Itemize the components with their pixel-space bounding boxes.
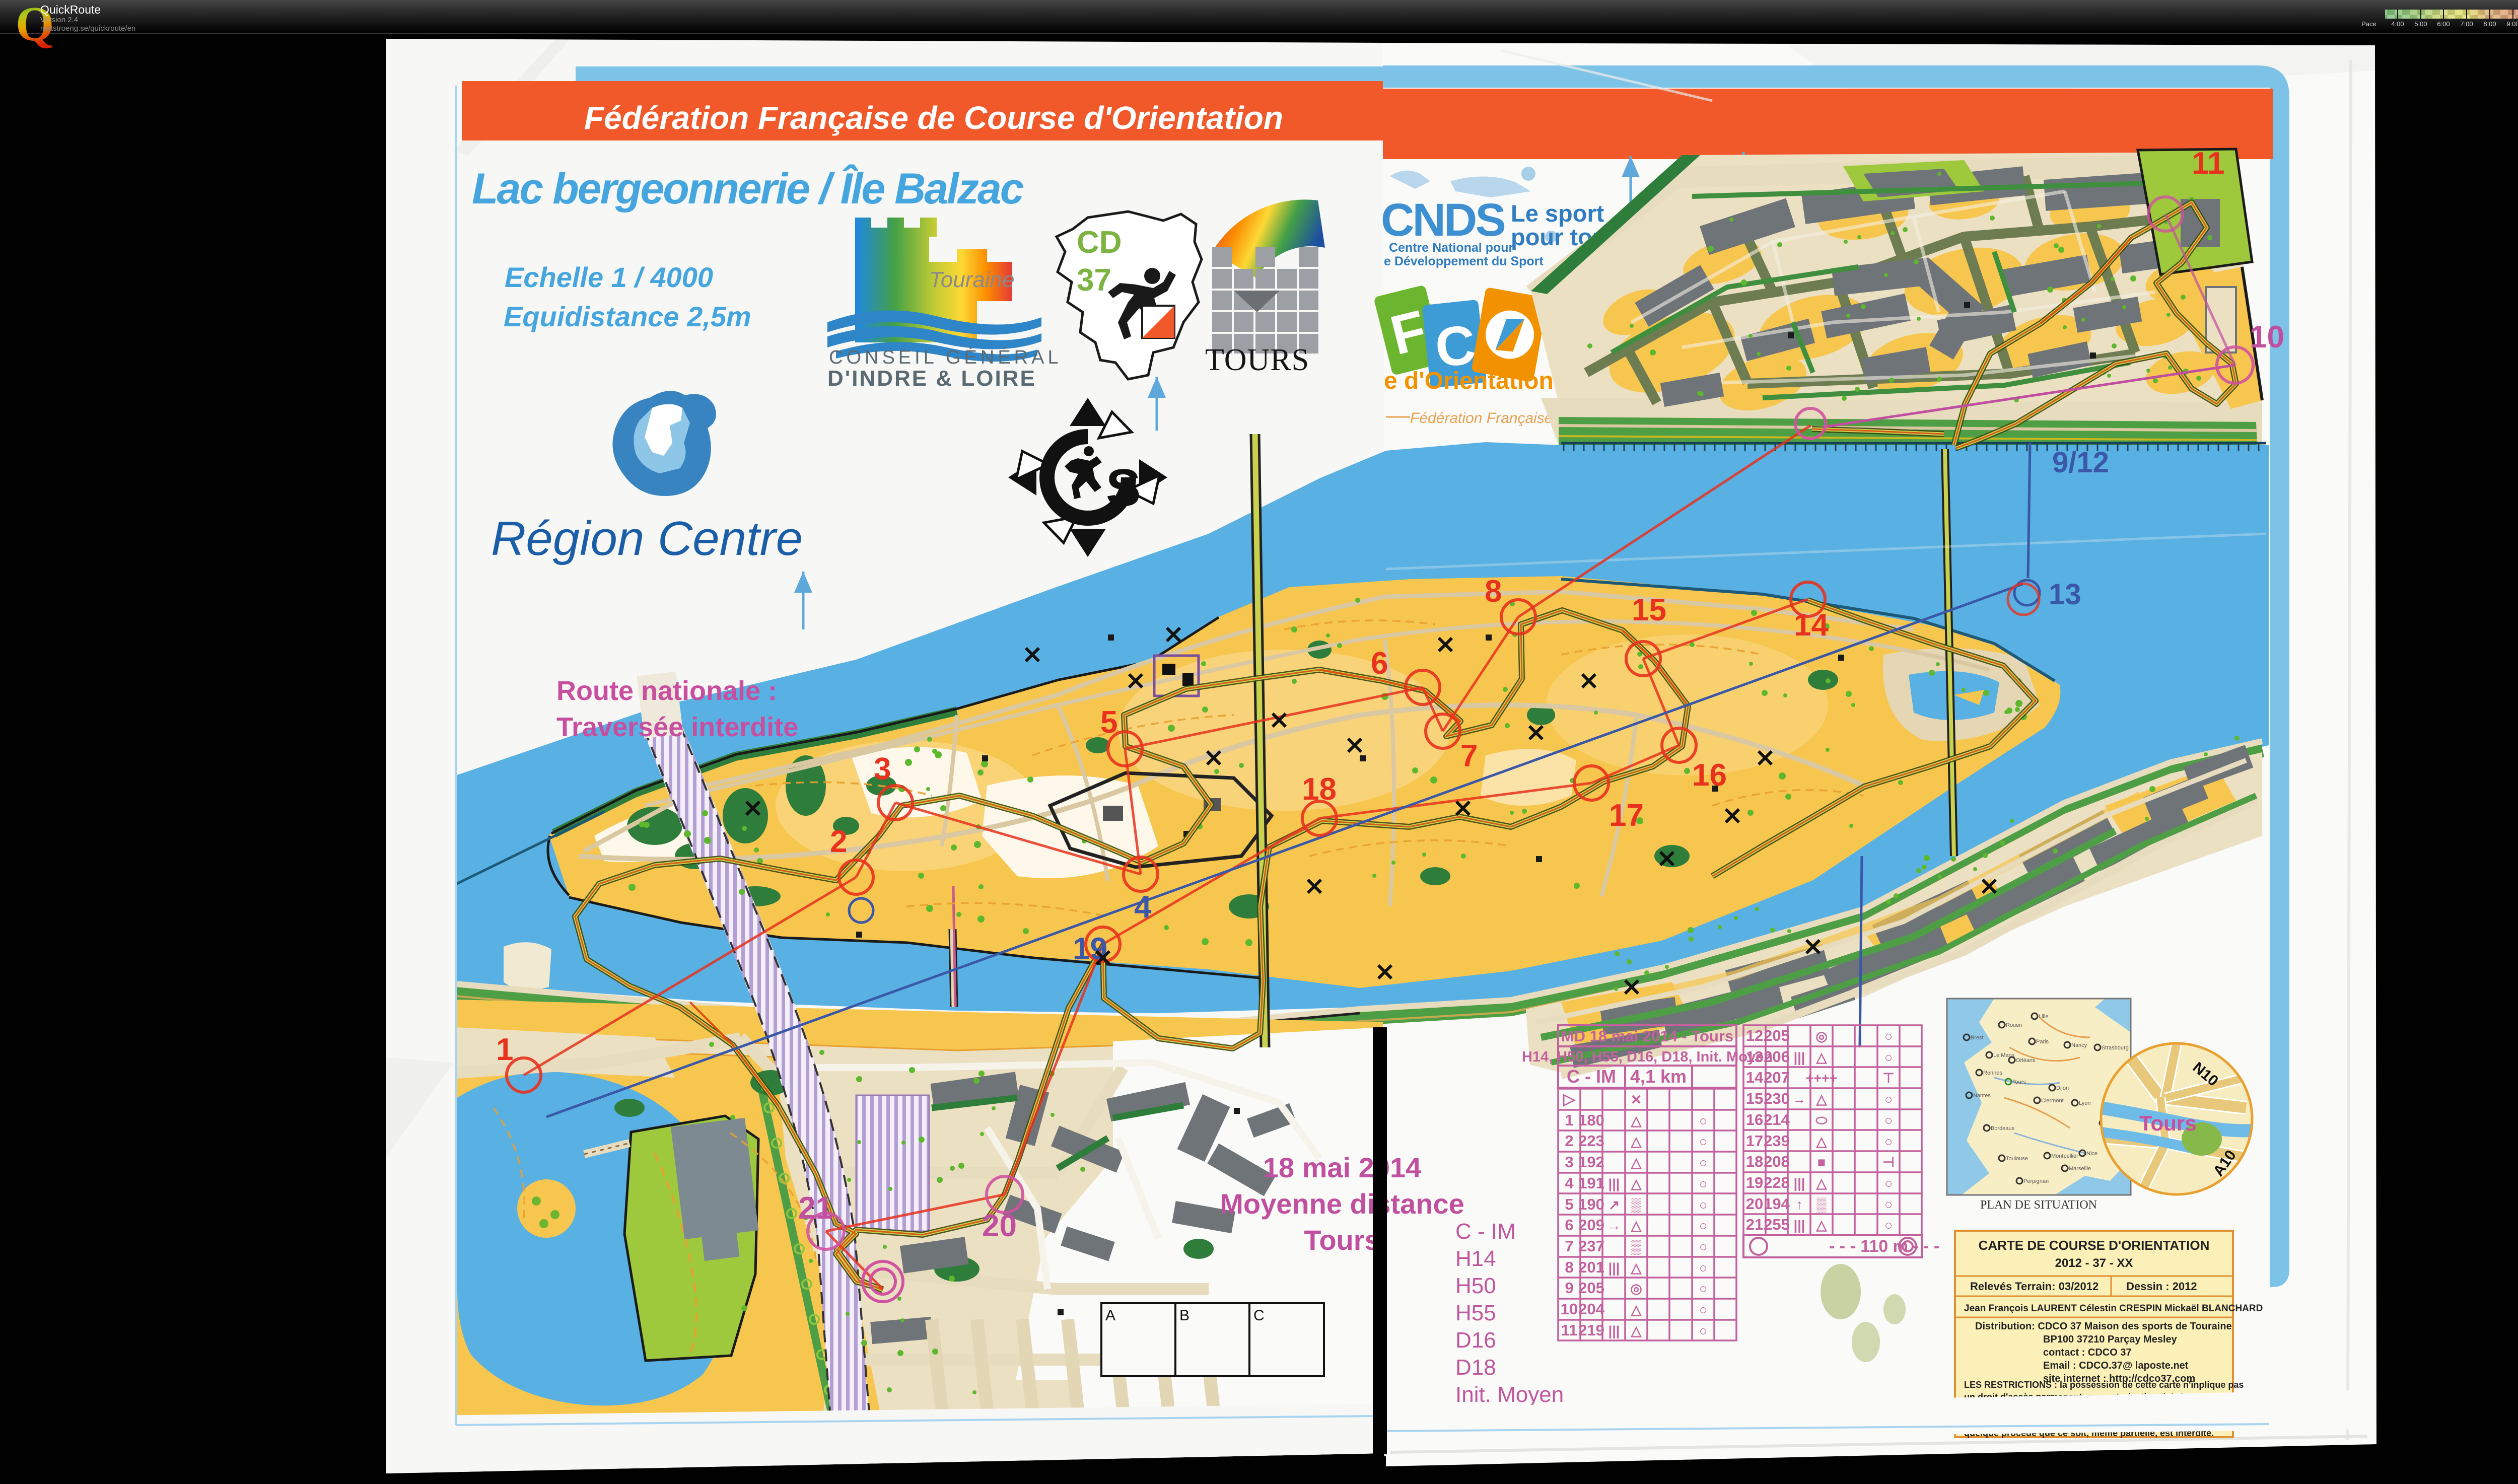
svg-text:Strasbourg: Strasbourg xyxy=(2102,1045,2129,1051)
svg-text:2: 2 xyxy=(830,824,847,859)
svg-text:37: 37 xyxy=(1077,263,1111,298)
svg-text:14: 14 xyxy=(1794,608,1829,643)
svg-text:Bordeaux: Bordeaux xyxy=(1991,1125,2015,1132)
svg-text:○: ○ xyxy=(1884,1113,1893,1128)
svg-text:17: 17 xyxy=(1609,798,1644,833)
svg-text:S: S xyxy=(1106,459,1141,517)
svg-text:Tours: Tours xyxy=(1304,1224,1380,1256)
svg-text:▒: ▒ xyxy=(1816,1197,1827,1213)
svg-text:○: ○ xyxy=(1699,1134,1707,1149)
svg-text:H14: H14 xyxy=(1455,1246,1496,1271)
svg-text:○: ○ xyxy=(1884,1050,1893,1065)
svg-text:223: 223 xyxy=(1578,1132,1604,1150)
svg-text:1: 1 xyxy=(496,1032,513,1067)
svg-text:|||: ||| xyxy=(1608,1260,1620,1276)
svg-text:18: 18 xyxy=(1302,772,1337,807)
svg-text:7: 7 xyxy=(1460,739,1478,773)
svg-text:⊤: ⊤ xyxy=(1882,1071,1895,1086)
svg-text:- - - 110 m - - -: - - - 110 m - - - xyxy=(1829,1237,1939,1256)
svg-text:204: 204 xyxy=(1578,1300,1604,1318)
svg-text:|||: ||| xyxy=(1794,1050,1805,1065)
svg-text:TOURS: TOURS xyxy=(1205,343,1309,377)
svg-text:○: ○ xyxy=(1699,1281,1707,1296)
svg-text:D16: D16 xyxy=(1455,1328,1496,1353)
svg-text:Touraine: Touraine xyxy=(929,267,1015,292)
svg-text:contact : CDCO 37: contact : CDCO 37 xyxy=(2043,1347,2132,1358)
svg-text:4,1 km: 4,1 km xyxy=(1630,1066,1687,1087)
svg-text:Tours: Tours xyxy=(2139,1111,2197,1135)
svg-text:18: 18 xyxy=(1746,1153,1763,1170)
svg-text:214: 214 xyxy=(1764,1111,1790,1128)
svg-text:219: 219 xyxy=(1578,1321,1604,1339)
svg-text:Tours: Tours xyxy=(2012,1079,2026,1085)
svg-text:QuickRoute: QuickRoute xyxy=(40,3,101,16)
svg-text:△: △ xyxy=(1816,1134,1828,1149)
svg-text:Equidistance 2,5m: Equidistance 2,5m xyxy=(504,301,751,332)
svg-text:8: 8 xyxy=(1485,574,1502,609)
svg-text:A: A xyxy=(1105,1307,1115,1324)
svg-text:16: 16 xyxy=(1692,758,1727,793)
svg-text:11: 11 xyxy=(2192,146,2225,181)
svg-text:CARTE DE COURSE D'ORIENTATION: CARTE DE COURSE D'ORIENTATION xyxy=(1979,1238,2210,1253)
svg-text:6:00: 6:00 xyxy=(2437,20,2450,28)
svg-text:Fédération Française de Course: Fédération Française de Course d'Orienta… xyxy=(584,100,1283,136)
svg-text:Traversée interdite: Traversée interdite xyxy=(556,712,798,742)
svg-text:2: 2 xyxy=(1565,1132,1573,1150)
svg-text:4: 4 xyxy=(1565,1174,1574,1192)
svg-text:◎: ◎ xyxy=(1630,1281,1642,1296)
svg-text:○: ○ xyxy=(1699,1260,1707,1276)
svg-text:5: 5 xyxy=(1100,705,1117,740)
svg-text:18 mai 2014: 18 mai 2014 xyxy=(1263,1152,1421,1183)
svg-text:△: △ xyxy=(1816,1050,1828,1065)
svg-text:△: △ xyxy=(1631,1302,1642,1317)
svg-text:▷: ▷ xyxy=(1563,1090,1576,1108)
svg-text:△: △ xyxy=(1631,1155,1642,1170)
svg-text:○: ○ xyxy=(1884,1218,1893,1233)
svg-text:⊣: ⊣ xyxy=(1882,1155,1895,1170)
svg-text:7:00: 7:00 xyxy=(2460,20,2473,28)
svg-text:++++: ++++ xyxy=(1805,1071,1837,1086)
svg-text:Distribution: CDCO 37 Maison: Distribution: CDCO 37 Maison des sports … xyxy=(1975,1321,2232,1332)
svg-text:Brest: Brest xyxy=(1971,1035,1984,1041)
svg-text:237: 237 xyxy=(1578,1237,1604,1255)
svg-text:192: 192 xyxy=(1578,1153,1604,1171)
svg-text:○: ○ xyxy=(1699,1113,1707,1128)
svg-text:7: 7 xyxy=(1565,1237,1573,1255)
svg-text:9:00: 9:00 xyxy=(2506,20,2518,28)
svg-text:Clermont: Clermont xyxy=(2041,1098,2064,1104)
svg-text:208: 208 xyxy=(1764,1153,1790,1170)
svg-text:13: 13 xyxy=(2049,578,2081,611)
svg-text:Jean François LAURENT Célestin: Jean François LAURENT Célestin CRESPIN M… xyxy=(1964,1303,2263,1314)
svg-text:9: 9 xyxy=(1565,1279,1573,1297)
svg-text:194: 194 xyxy=(1764,1195,1790,1213)
svg-text:D'INDRE & LOIRE: D'INDRE & LOIRE xyxy=(827,366,1036,391)
svg-text:○: ○ xyxy=(1699,1176,1707,1191)
svg-text:C: C xyxy=(1253,1307,1265,1324)
svg-text:BP100 37210 Parçay Mesley: BP100 37210 Parçay Mesley xyxy=(2043,1334,2178,1345)
svg-text:Nancy: Nancy xyxy=(2071,1042,2087,1048)
svg-text:Lille: Lille xyxy=(2039,1014,2049,1020)
svg-text:10: 10 xyxy=(1561,1300,1578,1318)
svg-text:|||: ||| xyxy=(1608,1176,1620,1191)
svg-text:14: 14 xyxy=(1746,1069,1764,1086)
svg-text:Centre National pour: Centre National pour xyxy=(1389,241,1514,255)
svg-text:CONSEIL GÉNÉRAL: CONSEIL GÉNÉRAL xyxy=(829,346,1062,368)
svg-text:↗: ↗ xyxy=(1608,1197,1620,1213)
svg-text:3: 3 xyxy=(874,752,891,787)
svg-text:○: ○ xyxy=(1884,1092,1893,1107)
svg-text:21: 21 xyxy=(1746,1216,1763,1233)
svg-text:△: △ xyxy=(1631,1113,1642,1128)
svg-text:|||: ||| xyxy=(1794,1176,1805,1191)
svg-text:11: 11 xyxy=(1561,1321,1578,1339)
svg-text:15: 15 xyxy=(1632,593,1666,627)
svg-text:|||: ||| xyxy=(1794,1218,1805,1233)
svg-text:△: △ xyxy=(1631,1323,1642,1338)
svg-text:LES RESTRICTIONS : la possessi: LES RESTRICTIONS : la possession de cett… xyxy=(1964,1380,2244,1390)
svg-text:Dessin : 2012: Dessin : 2012 xyxy=(2126,1280,2197,1293)
svg-text:⬭: ⬭ xyxy=(1815,1113,1828,1128)
svg-text:15: 15 xyxy=(1746,1090,1763,1107)
svg-text:2012 - 37 - XX: 2012 - 37 - XX xyxy=(2055,1256,2133,1270)
svg-text:Rouen: Rouen xyxy=(2006,1022,2022,1028)
svg-text:H14, H50, H55, D16, D18, Init.: H14, H50, H55, D16, D18, Init. Moyen xyxy=(1522,1049,1773,1065)
svg-text:CD: CD xyxy=(1077,225,1122,260)
svg-text:Version 2.4: Version 2.4 xyxy=(40,16,78,24)
svg-text:Le sport: Le sport xyxy=(1511,200,1604,227)
svg-text:△: △ xyxy=(1816,1218,1828,1233)
svg-text:✕: ✕ xyxy=(1631,1092,1642,1107)
svg-text:9/12: 9/12 xyxy=(2052,446,2109,479)
svg-text:▒: ▒ xyxy=(1631,1239,1641,1255)
svg-text:B: B xyxy=(1179,1307,1190,1324)
svg-text:Relevés Terrain: 03/2012: Relevés Terrain: 03/2012 xyxy=(1970,1280,2099,1293)
svg-text:○: ○ xyxy=(1699,1239,1707,1254)
svg-text:|||: ||| xyxy=(1608,1323,1620,1338)
svg-text:△: △ xyxy=(1631,1260,1642,1276)
svg-text:○: ○ xyxy=(1884,1197,1893,1212)
svg-text:e Développement du Sport: e Développement du Sport xyxy=(1384,254,1544,268)
svg-text:21: 21 xyxy=(798,1191,833,1226)
svg-text:○: ○ xyxy=(1699,1302,1707,1317)
svg-text:CNDS: CNDS xyxy=(1381,194,1504,246)
svg-text:20: 20 xyxy=(982,1209,1017,1243)
svg-text:190: 190 xyxy=(1578,1195,1604,1213)
svg-text:12: 12 xyxy=(1746,1027,1763,1044)
svg-text:8: 8 xyxy=(1565,1258,1573,1276)
svg-text:255: 255 xyxy=(1764,1216,1790,1233)
svg-text:Dijon: Dijon xyxy=(2056,1085,2069,1091)
svg-text:191: 191 xyxy=(1578,1174,1604,1192)
svg-text:Lac bergeonnerie / Île Balzac: Lac bergeonnerie / Île Balzac xyxy=(472,165,1024,213)
svg-text:△: △ xyxy=(1631,1176,1642,1191)
svg-text:△: △ xyxy=(1816,1092,1828,1107)
svg-text:◎: ◎ xyxy=(1815,1029,1828,1044)
svg-text:○: ○ xyxy=(1884,1029,1893,1044)
svg-text:6: 6 xyxy=(1371,646,1388,681)
svg-text:Rennes: Rennes xyxy=(1983,1070,2002,1076)
svg-text:Pace: Pace xyxy=(2361,20,2376,28)
svg-text:228: 228 xyxy=(1764,1174,1790,1191)
svg-text:19: 19 xyxy=(1746,1174,1763,1191)
svg-text:MD 18 mai 2014 - Tours: MD 18 mai 2014 - Tours xyxy=(1561,1027,1733,1045)
svg-text:13: 13 xyxy=(1746,1048,1763,1066)
svg-text:8:00: 8:00 xyxy=(2483,20,2496,28)
svg-text:1: 1 xyxy=(1565,1111,1573,1129)
svg-text:△: △ xyxy=(1631,1134,1642,1149)
svg-text:230: 230 xyxy=(1764,1090,1790,1107)
svg-text:20: 20 xyxy=(1746,1195,1763,1213)
svg-text:○: ○ xyxy=(1699,1197,1707,1213)
svg-text:209: 209 xyxy=(1578,1216,1604,1234)
svg-text:Perpignan: Perpignan xyxy=(2023,1178,2049,1184)
svg-text:↑: ↑ xyxy=(1796,1197,1803,1212)
svg-text:3: 3 xyxy=(1565,1153,1573,1171)
svg-text:Fédération Française: Fédération Française xyxy=(1410,410,1553,427)
svg-text:Init. Moyen: Init. Moyen xyxy=(1455,1382,1564,1407)
svg-text:○: ○ xyxy=(1884,1176,1893,1191)
svg-text:205: 205 xyxy=(1578,1279,1604,1297)
svg-text:Route nationale :: Route nationale : xyxy=(556,676,777,706)
svg-text:○: ○ xyxy=(1699,1323,1707,1338)
svg-text:5: 5 xyxy=(1565,1195,1573,1213)
svg-text:201: 201 xyxy=(1578,1258,1604,1276)
svg-text:e d'Orientation: e d'Orientation xyxy=(1384,368,1554,394)
svg-text:△: △ xyxy=(1816,1176,1828,1191)
svg-text:■: ■ xyxy=(1817,1155,1826,1170)
svg-text:Email : CDCO.37@ laposte.net: Email : CDCO.37@ laposte.net xyxy=(2043,1360,2189,1371)
svg-text:PLAN DE SITUATION: PLAN DE SITUATION xyxy=(1980,1198,2097,1212)
svg-text:H50: H50 xyxy=(1455,1274,1496,1298)
svg-text:Nantes: Nantes xyxy=(1973,1093,1991,1099)
svg-text:○: ○ xyxy=(1699,1155,1707,1170)
svg-text:○: ○ xyxy=(1884,1134,1893,1149)
svg-text:Moyenne distance: Moyenne distance xyxy=(1220,1188,1464,1220)
svg-text:Nice: Nice xyxy=(2086,1151,2097,1157)
svg-text:→: → xyxy=(1793,1092,1806,1107)
svg-text:D18: D18 xyxy=(1455,1355,1496,1380)
svg-text:Paris: Paris xyxy=(2036,1039,2049,1045)
svg-text:207: 207 xyxy=(1764,1069,1790,1086)
svg-text:4: 4 xyxy=(1134,890,1152,925)
svg-text:Echelle 1 / 4000: Echelle 1 / 4000 xyxy=(505,261,713,293)
svg-text:19: 19 xyxy=(1073,932,1107,966)
svg-text:matstroeng.se/quickroute/en: matstroeng.se/quickroute/en xyxy=(40,24,135,33)
svg-text:4:00: 4:00 xyxy=(2391,20,2404,28)
svg-text:6: 6 xyxy=(1565,1216,1573,1234)
svg-text:17: 17 xyxy=(1746,1132,1763,1150)
svg-text:Orléans: Orléans xyxy=(2016,1057,2036,1064)
svg-text:→: → xyxy=(1607,1218,1621,1233)
svg-text:5:00: 5:00 xyxy=(2414,20,2427,28)
svg-text:C - IM: C - IM xyxy=(1455,1219,1516,1244)
svg-text:239: 239 xyxy=(1764,1132,1790,1150)
svg-text:Lyon: Lyon xyxy=(2079,1100,2090,1106)
svg-text:Toulouse: Toulouse xyxy=(2006,1156,2028,1162)
svg-text:206: 206 xyxy=(1764,1048,1790,1066)
svg-text:C - IM: C - IM xyxy=(1567,1066,1616,1087)
svg-text:Région Centre: Région Centre xyxy=(491,512,803,566)
svg-text:10: 10 xyxy=(2250,320,2284,355)
svg-text:○: ○ xyxy=(1699,1218,1707,1233)
svg-text:H55: H55 xyxy=(1455,1301,1496,1325)
svg-text:16: 16 xyxy=(1746,1111,1763,1128)
svg-text:△: △ xyxy=(1631,1218,1642,1233)
svg-text:Montpellier: Montpellier xyxy=(2051,1153,2078,1159)
svg-text:▒: ▒ xyxy=(1631,1197,1641,1213)
svg-text:180: 180 xyxy=(1578,1111,1604,1129)
svg-text:205: 205 xyxy=(1764,1027,1790,1044)
svg-text:Marseille: Marseille xyxy=(2069,1166,2091,1172)
